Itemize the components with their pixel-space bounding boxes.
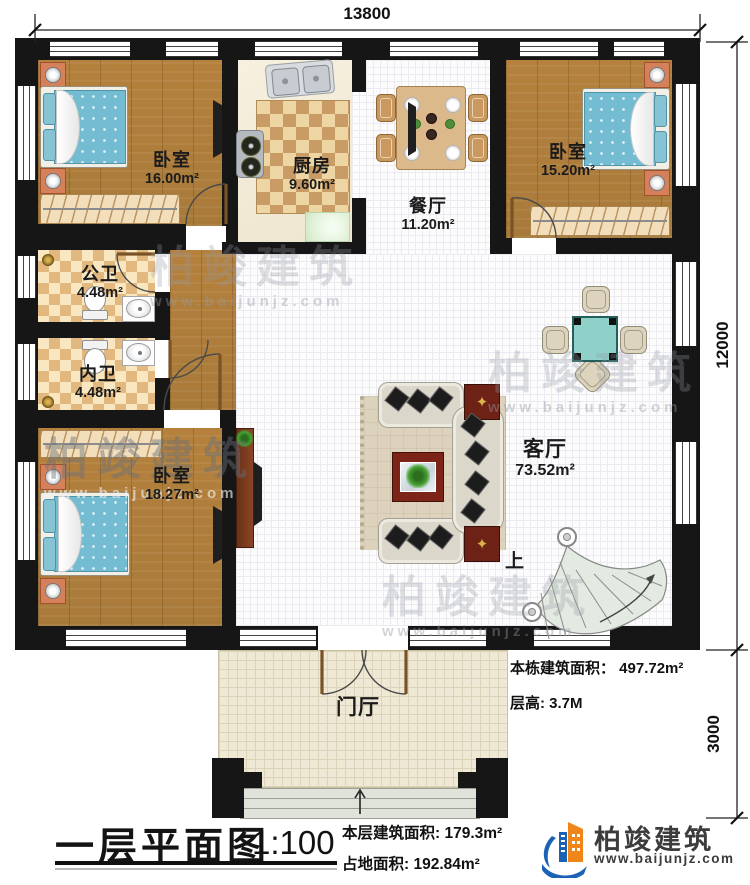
porch-pillar-left	[212, 758, 244, 818]
wall-bed2-bottom-a	[490, 238, 512, 254]
wall-bed2-bottom-b	[556, 238, 672, 254]
room-label-dining: 餐厅11.20m²	[368, 196, 488, 233]
window	[17, 462, 36, 560]
sink-icon	[126, 299, 151, 318]
window	[675, 84, 697, 186]
chair	[542, 326, 569, 354]
chair	[582, 286, 610, 313]
entry-step	[240, 808, 480, 819]
bowl	[426, 113, 437, 124]
dimension-right-lower: 3000	[704, 694, 724, 774]
dining-chair	[376, 94, 396, 122]
room-label-bath-public: 公卫4.48m²	[40, 264, 160, 301]
bed-pillow	[43, 93, 56, 125]
tv-icon	[254, 462, 262, 526]
room-label-living: 客厅73.52m²	[485, 438, 605, 481]
window	[240, 629, 316, 647]
window	[410, 629, 486, 647]
dimension-top: 13800	[317, 4, 417, 24]
room-label-foyer: 门厅	[298, 696, 418, 720]
window	[166, 41, 218, 57]
window	[66, 629, 186, 647]
tv-icon	[213, 506, 222, 564]
title-underline-thin	[55, 868, 337, 870]
dimension-right-upper: 12000	[713, 305, 733, 385]
land-area-note: 占地面积: 192.84m²	[342, 852, 480, 874]
sink-basin	[302, 64, 331, 93]
building-notes: 本栋建筑面积： 497.72m² 层高: 3.7M	[510, 652, 683, 721]
kitchen-sink-icon	[265, 59, 336, 99]
chair	[620, 326, 647, 354]
plate	[445, 97, 461, 113]
brand-logo-icon	[538, 816, 590, 878]
wall-bath-right-a	[155, 246, 170, 254]
floor-height: 层高: 3.7M	[510, 687, 683, 722]
nightstand	[644, 170, 670, 196]
window	[614, 41, 664, 57]
sink-basin	[271, 67, 300, 96]
dining-chair	[468, 134, 488, 162]
window	[675, 262, 697, 346]
window	[520, 41, 598, 57]
brand-url: www.baijunjz.com	[594, 851, 735, 866]
window	[17, 256, 36, 298]
window	[17, 344, 36, 400]
stairs-up-label: 上	[505, 546, 524, 573]
room-label-bedroom3: 卧室18.27m²	[112, 466, 232, 503]
game-table-icon	[572, 316, 618, 362]
bed-pillow	[654, 131, 667, 163]
nightstand	[40, 62, 66, 88]
bowl	[426, 129, 437, 140]
porch-pillar-right	[476, 758, 508, 818]
window	[390, 41, 478, 57]
corridor-floor	[170, 250, 236, 410]
stove-burner	[241, 136, 261, 156]
kitchen-mat	[305, 212, 350, 242]
floor-area-note: 本层建筑面积: 179.3m²	[342, 821, 502, 843]
entry-door-opening	[318, 626, 408, 650]
nightstand	[40, 168, 66, 194]
wall-bed3-top-a	[15, 410, 164, 428]
room-label-bedroom1: 卧室16.00m²	[112, 150, 232, 187]
wardrobe-icon	[530, 206, 670, 236]
plant-icon	[406, 464, 430, 488]
window	[534, 629, 610, 647]
nightstand	[40, 464, 66, 490]
dining-chair	[468, 94, 488, 122]
window	[255, 41, 342, 57]
window	[17, 86, 36, 180]
sink-icon	[126, 343, 151, 362]
drawing-scale: 1:100	[252, 824, 335, 862]
window	[50, 41, 130, 57]
wardrobe-icon	[40, 194, 180, 224]
room-label-bedroom2: 卧室15.20m²	[508, 142, 628, 179]
title-underline	[55, 861, 337, 865]
dining-table-icon	[396, 86, 466, 170]
room-label-bath-private: 内卫4.48m²	[38, 364, 158, 401]
wall-bed3-right	[222, 410, 236, 626]
porch-pillar-left-tab	[244, 772, 262, 788]
bed-pillow	[43, 129, 56, 161]
dish	[445, 119, 455, 129]
wall-kitchen-dining-top	[352, 38, 366, 92]
bed-pillow	[654, 95, 667, 127]
bed-pillow	[43, 537, 56, 571]
window	[675, 442, 697, 524]
plant-icon	[236, 430, 253, 447]
wall-bed2-left	[490, 60, 506, 240]
porch-pillar-right-tab	[458, 772, 476, 788]
side-table: ✦	[464, 526, 500, 562]
wall-kitchen-bottom	[222, 242, 366, 254]
nightstand	[40, 578, 66, 604]
room-label-kitchen: 厨房9.60m²	[252, 156, 372, 193]
toilet-tank	[82, 310, 108, 320]
dining-chair	[376, 134, 396, 162]
wardrobe-icon	[40, 430, 162, 458]
tv-icon	[408, 102, 416, 156]
bed-pillow	[43, 499, 56, 533]
plate	[445, 145, 461, 161]
total-building-area: 本栋建筑面积： 497.72m²	[510, 652, 683, 687]
nightstand	[644, 62, 670, 88]
floor-plan-canvas: ✦ ✦	[0, 0, 750, 885]
wall-bath-divider	[15, 322, 170, 338]
